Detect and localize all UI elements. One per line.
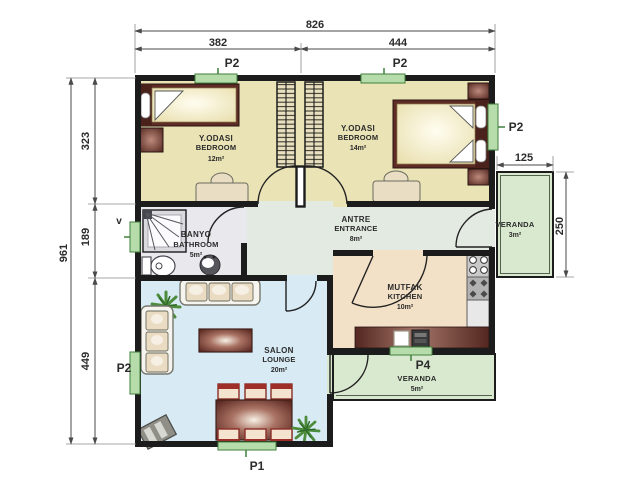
fridge [467, 300, 489, 327]
stove [412, 330, 429, 347]
sink [200, 255, 220, 275]
coffee-table [199, 329, 252, 352]
room-name: Y.ODASI [341, 124, 375, 133]
room-area: 3m² [509, 232, 522, 239]
cooktop [467, 253, 489, 300]
window-bedroom1-top [195, 74, 237, 83]
room-name-en: ENTRANCE [334, 224, 377, 233]
dim-total-height: 961 [58, 244, 70, 262]
room-name-en: LOUNGE [262, 355, 295, 364]
kitchen-sink [394, 331, 409, 346]
label-window-p4: P4 [416, 358, 431, 372]
label-door-p1: P1 [250, 459, 265, 473]
window-lounge-west [130, 352, 140, 394]
nightstand [139, 128, 163, 152]
window-bedroom2-east [488, 104, 498, 150]
double-bed [393, 100, 489, 168]
room-name: ANTRE [341, 215, 370, 224]
sofa-three-seat [180, 279, 260, 305]
closet-wall-stub [297, 167, 305, 207]
room-area: 5m² [411, 386, 424, 393]
dim-width-left: 382 [209, 37, 227, 49]
single-bed [139, 84, 239, 126]
dim-height-bottom: 449 [80, 352, 92, 370]
room-name: Y.ODASI [199, 134, 233, 143]
label-window-p2-top-right: P2 [393, 56, 408, 70]
window-kitchen-south [390, 347, 432, 355]
floor-plan-page: 826 382 444 961 323 189 449 125 250 P2 P… [0, 0, 640, 480]
dim-width-right: 444 [389, 37, 408, 49]
label-window-p2-lounge: P2 [117, 361, 132, 375]
room-name: VERANDA [495, 220, 534, 229]
label-window-p2-top-left: P2 [225, 56, 240, 70]
room-name-en: BEDROOM [338, 133, 379, 142]
door-lounge-south [218, 442, 276, 450]
chair [245, 384, 266, 399]
window-bedroom2-top [361, 74, 405, 83]
sofa-two-seat [141, 306, 173, 374]
label-window-v: v [116, 216, 122, 227]
room-area: 8m² [350, 236, 363, 243]
toilet [142, 256, 175, 276]
room-area: 14m² [350, 145, 367, 152]
dining-set [216, 384, 292, 444]
room-area: 12m² [208, 156, 225, 163]
dim-height-top: 323 [80, 132, 92, 150]
room-name: MUTFAK [387, 283, 422, 292]
room-name: SALON [264, 346, 294, 355]
floor-plan-drawing: 826 382 444 961 323 189 449 125 250 P2 P… [0, 0, 640, 480]
chair [271, 384, 292, 399]
nightstand [468, 169, 489, 185]
room-name: BANYO [181, 230, 211, 239]
dim-height-middle: 189 [80, 228, 92, 246]
room-name-en: BATHROOM [173, 240, 218, 249]
dim-veranda-height: 250 [554, 217, 566, 235]
room-area: 20m² [271, 367, 288, 374]
room-name: VERANDA [397, 374, 436, 383]
nightstand [468, 83, 489, 99]
room-name-en: KITCHEN [388, 292, 423, 301]
room-name-en: BEDROOM [196, 143, 237, 152]
room-area: 10m² [397, 304, 414, 311]
room-area: 5m² [190, 252, 203, 259]
label-window-p2-east: P2 [509, 120, 524, 134]
chair [218, 384, 239, 399]
window-bathroom-west [130, 222, 140, 252]
dim-total-width: 826 [306, 19, 324, 31]
dim-veranda-width: 125 [515, 152, 533, 164]
